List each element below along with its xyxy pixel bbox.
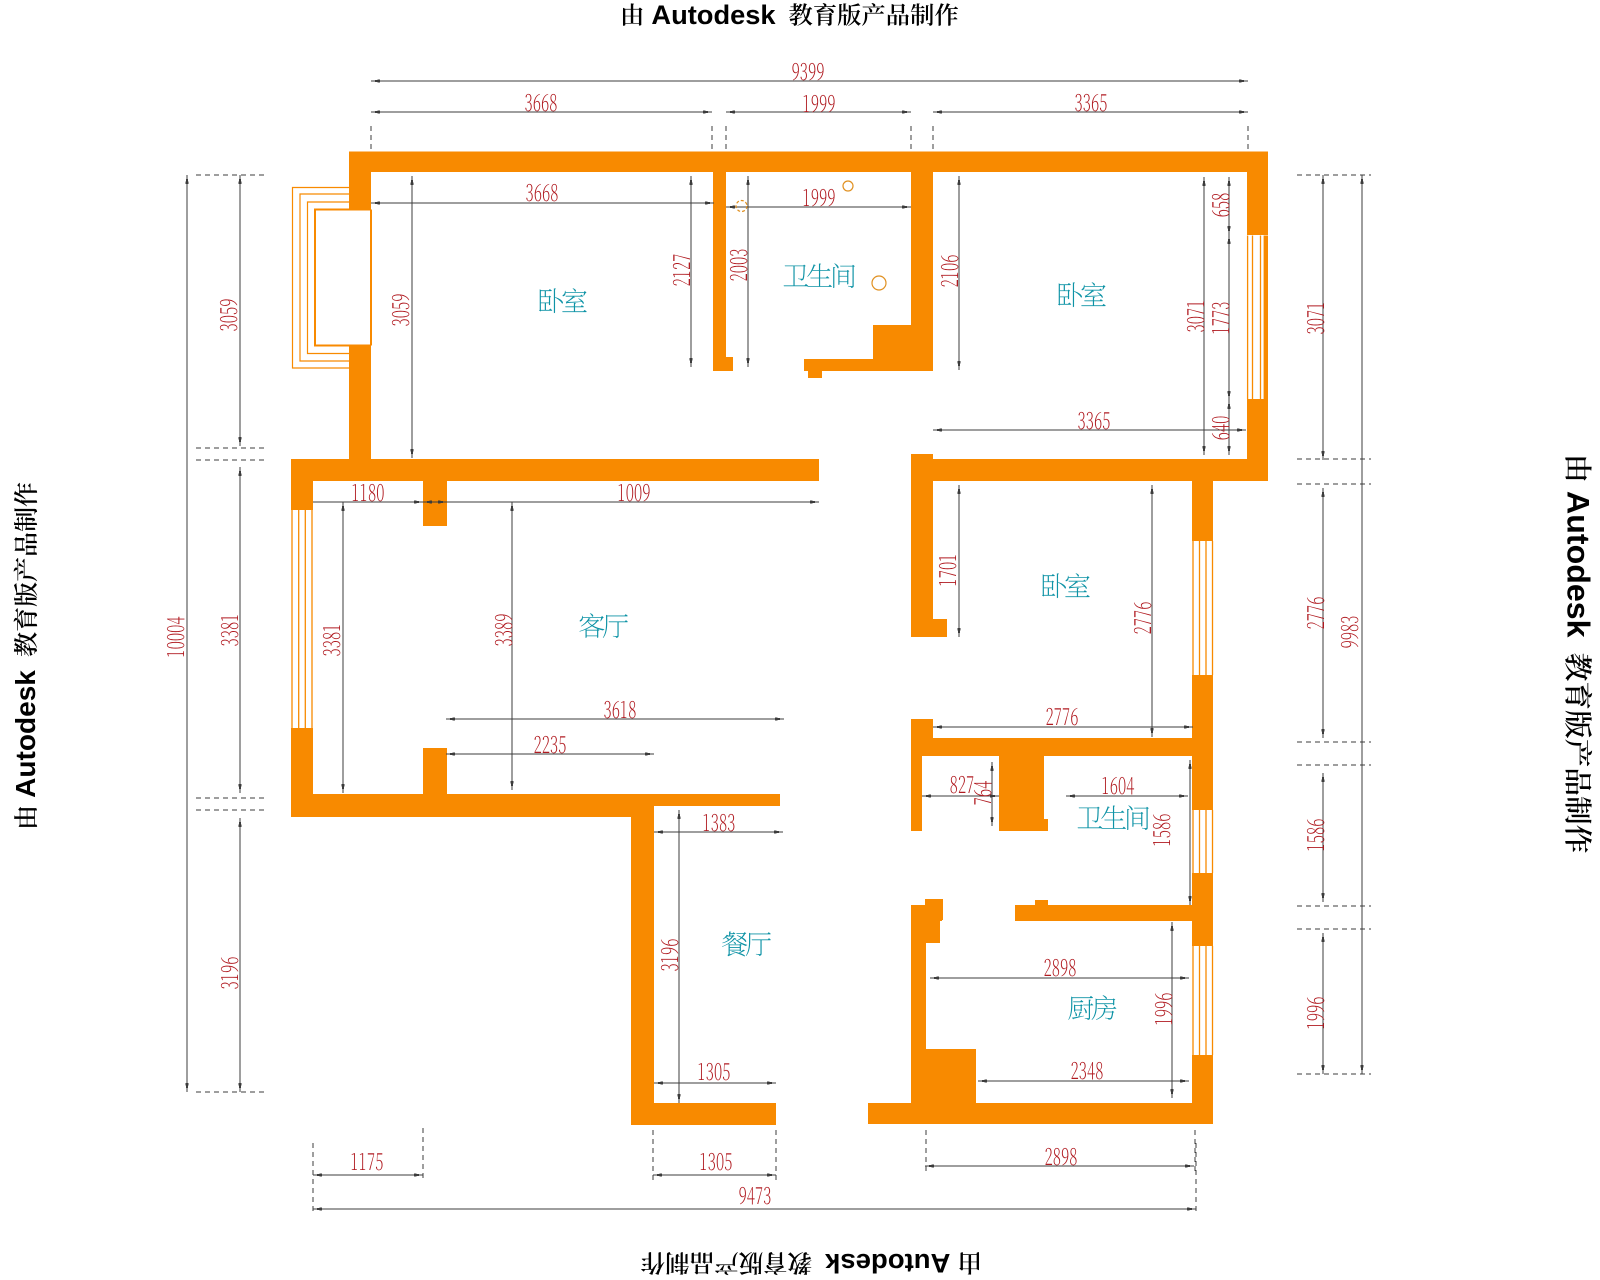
svg-text:Autodesk: Autodesk bbox=[824, 1248, 950, 1278]
svg-text:Autodesk: Autodesk bbox=[10, 669, 41, 797]
svg-text:Autodesk: Autodesk bbox=[651, 0, 775, 30]
svg-text:Autodesk: Autodesk bbox=[1561, 491, 1597, 638]
